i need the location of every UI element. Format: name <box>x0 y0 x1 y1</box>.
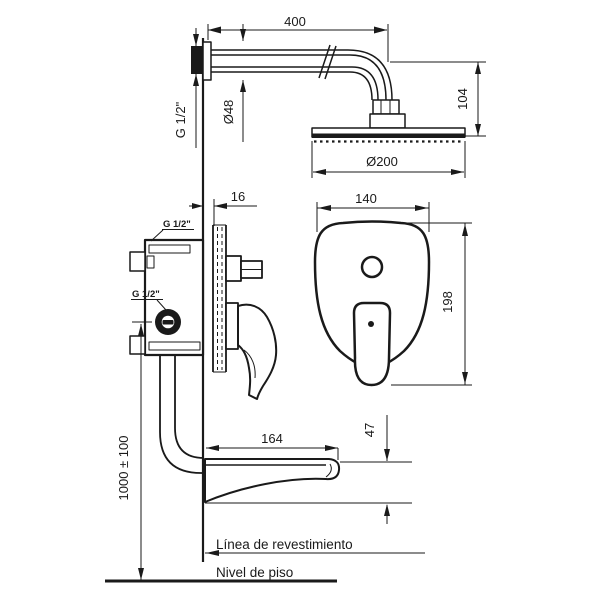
dim-mounting-height: 1000 ± 100 <box>116 322 152 580</box>
dim-label-048: Ø48 <box>221 100 236 125</box>
dim-arrow <box>313 169 326 175</box>
mixer-front-view <box>315 222 429 386</box>
arm-flange <box>203 42 211 80</box>
dim-label-198: 198 <box>440 291 455 313</box>
floor-line-label: Nivel de piso <box>216 565 293 580</box>
dim-head-diameter: Ø200 <box>312 141 465 178</box>
dim-label-104: 104 <box>455 88 470 110</box>
arm-pipe-outer-bottom <box>211 72 372 100</box>
handle-front <box>354 303 390 385</box>
wall-fitting <box>191 46 203 74</box>
dim-arrow <box>462 372 468 384</box>
dim-arrow <box>193 34 199 46</box>
dim-label-164: 164 <box>261 431 283 446</box>
dim-spout-length: 164 <box>206 431 338 460</box>
handle-base-side <box>226 303 238 349</box>
spout-pipe-inner <box>175 355 204 458</box>
label-inlet-thread: G 1/2" <box>151 219 194 241</box>
dim-arrow <box>138 324 144 336</box>
handle-lever-side <box>238 305 276 399</box>
valve-port-upper <box>130 252 145 271</box>
diverter-knob-base <box>226 256 241 281</box>
head-nut <box>373 100 399 114</box>
technical-drawing-shower-system: Línea de revestimiento Nivel de piso 400 <box>0 0 600 600</box>
dim-label-140: 140 <box>355 191 377 206</box>
shower-arm-assembly <box>191 42 465 142</box>
valve-outlet-slot <box>163 320 174 325</box>
dim-label-400: 400 <box>284 14 306 29</box>
dim-label-0200: Ø200 <box>366 154 398 169</box>
dim-label-47: 47 <box>362 423 377 437</box>
outlet-thread-label: G 1/2" <box>132 289 160 300</box>
dim-flange-diameter: Ø48 <box>221 24 246 142</box>
dim-arrow <box>451 169 464 175</box>
dim-arrow <box>240 29 246 41</box>
inlet-thread-label: G 1/2" <box>163 219 191 230</box>
dim-arrow <box>208 27 221 34</box>
spout-side-view <box>205 459 412 503</box>
dim-arrow <box>206 445 219 451</box>
dim-arrow <box>214 203 227 209</box>
break-mark-2 <box>325 46 336 79</box>
dim-label-16: 16 <box>231 189 245 204</box>
dim-arrow <box>384 504 390 516</box>
valve-port-lower <box>130 336 145 354</box>
dim-label-1000: 1000 ± 100 <box>116 436 131 501</box>
dim-arrow <box>462 224 468 236</box>
dim-spout-height: 47 <box>340 415 412 524</box>
head-base <box>370 114 405 128</box>
arm-thread-label: G 1/2" <box>173 101 188 138</box>
head-disc-rim <box>312 134 465 139</box>
spout-pipe-outer <box>160 355 204 473</box>
dim-arrow <box>374 27 387 34</box>
dim-arrow <box>193 74 199 86</box>
finish-line-label: Línea de revestimiento <box>216 537 353 552</box>
dim-arrow <box>415 205 428 211</box>
dim-arrow <box>325 445 338 451</box>
arm-pipe-inner-top <box>211 55 386 100</box>
dim-arrow <box>138 568 144 580</box>
dim-arrow <box>475 62 481 74</box>
handle-screw-dot <box>368 321 374 327</box>
dim-plate-offset: 16 <box>189 189 257 226</box>
dim-arrow <box>475 124 481 136</box>
dim-arrow <box>384 449 390 461</box>
dim-arrow <box>192 203 203 209</box>
dim-arrow <box>240 80 246 92</box>
dim-arrow <box>318 205 331 211</box>
drawing-svg: Línea de revestimiento Nivel de piso 400 <box>0 0 600 600</box>
